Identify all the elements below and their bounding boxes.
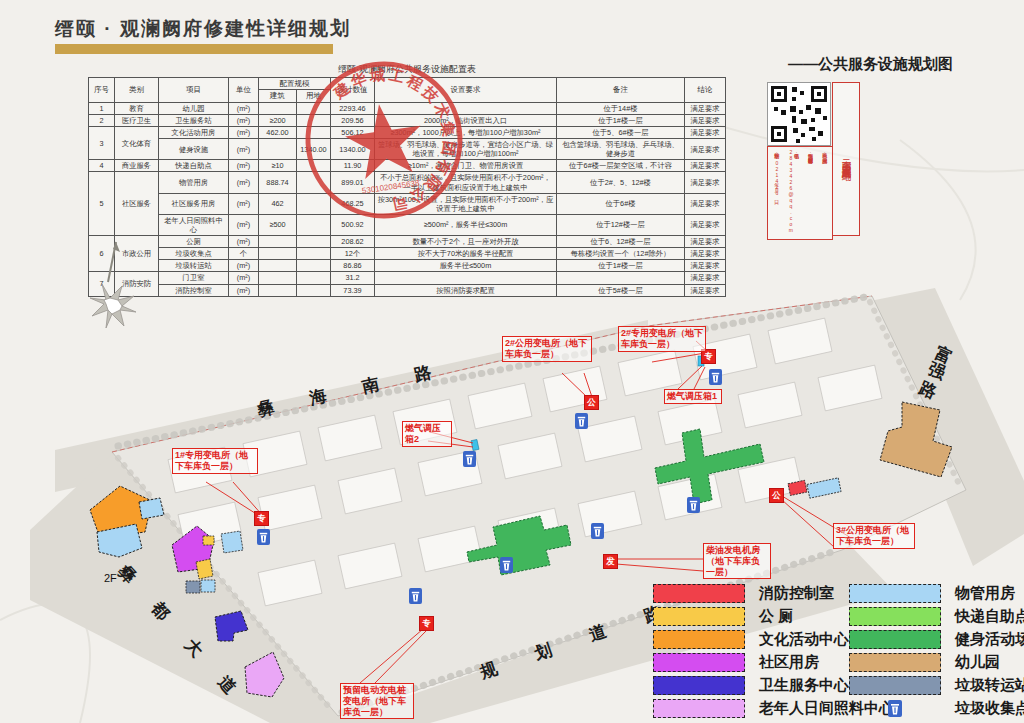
substation-marker: 公 — [769, 488, 784, 503]
table-cell: 位于6、12#楼一层 — [557, 236, 685, 248]
trash-collection-marker — [463, 451, 476, 467]
qr-info-column: 项目名称：观澜阙府 — [821, 149, 827, 237]
table-header-cell: 项目 — [159, 78, 229, 103]
trash-collection-marker — [575, 413, 588, 429]
legend-swatch — [653, 653, 745, 672]
table-cell: (m²) — [229, 126, 259, 138]
red-company-stamp: 建华城工程技术集团有限公司 5301020845638 — [298, 54, 470, 226]
table-cell — [557, 272, 685, 284]
table-cell: (m²) — [229, 214, 259, 235]
table-cell: (m²) — [229, 260, 259, 272]
qr-info-column: 编制单位：建华城工程技术有限公司 — [807, 149, 813, 237]
table-cell: 888.74 — [259, 172, 297, 193]
table-cell: 2 — [89, 114, 115, 126]
table-cell — [259, 248, 297, 260]
table-cell: 文化体育 — [115, 126, 159, 159]
table-cell — [259, 102, 297, 114]
table-cell: 31.2 — [331, 272, 375, 284]
table-cell: 个 — [229, 248, 259, 260]
table-row: 消防控制室(m²)73.39按照消防要求配置位于5#楼一层满足要求 — [89, 284, 726, 296]
toilet-footprint — [203, 536, 214, 545]
qr-info-column: 电子信箱：2843426@qq.com — [787, 149, 798, 237]
table-header-cell: 序号 — [89, 78, 115, 103]
table-cell: 按照消防要求配置 — [375, 284, 557, 296]
table-cell: 4 — [89, 160, 115, 172]
table-cell: 位于14#楼 — [557, 102, 685, 114]
table-cell: 按不大于70米的服务半径配置 — [375, 248, 557, 260]
table-cell: 3 — [89, 126, 115, 159]
table-cell: (m²) — [229, 139, 259, 160]
map-annotation: 2#专用变电所（地下车库负一层） — [618, 326, 706, 352]
table-cell: ≥200 — [259, 114, 297, 126]
page-title: 缙颐 · 观澜阙府修建性详细规划 — [55, 16, 351, 42]
qr-side-caption: 云南省国土空间规划成果二维码 — [832, 82, 860, 236]
table-cell: 满足要求 — [685, 214, 726, 235]
table-cell: 位于5、6#楼一层 — [557, 126, 685, 138]
table-cell: 文化活动用房 — [159, 126, 229, 138]
table-cell: 卫生服务站 — [159, 114, 229, 126]
legend-swatch — [653, 607, 745, 626]
table-cell: (m²) — [229, 193, 259, 214]
table-cell — [297, 236, 331, 248]
table-cell — [297, 260, 331, 272]
table-cell: 位于5#楼一层 — [557, 284, 685, 296]
table-cell: 位于12#楼一层 — [557, 214, 685, 235]
table-cell: 满足要求 — [685, 114, 726, 126]
table-cell: 数量不小于2个，且一座对外开放 — [375, 236, 557, 248]
trash-collection-marker — [257, 529, 270, 545]
table-cell: (m²) — [229, 160, 259, 172]
toilet-footprint-2 — [196, 559, 213, 579]
floor-count-label: 2F — [104, 572, 117, 584]
legend-swatch — [653, 699, 745, 718]
legend-swatch — [849, 676, 941, 695]
table-cell: 73.39 — [331, 284, 375, 296]
table-cell: 幼儿园 — [159, 102, 229, 114]
stamp-star — [341, 99, 426, 181]
qr-info-box: 项目名称：观澜阙府编制单位：建华城工程技术有限公司电子信箱：2843426@qq… — [767, 146, 833, 240]
table-cell: 位于1#楼一层 — [557, 114, 685, 126]
table-cell: (m²) — [229, 236, 259, 248]
legend-label: 物管用房 — [955, 584, 1024, 603]
table-cell: 满足要求 — [685, 248, 726, 260]
table-header-cell: 单位 — [229, 78, 259, 103]
table-cell: 快递自助点 — [159, 160, 229, 172]
legend-swatch — [849, 653, 941, 672]
legend-label: 幼儿园 — [955, 653, 1024, 672]
table-cell — [297, 284, 331, 296]
table-cell — [297, 248, 331, 260]
table-cell — [297, 272, 331, 284]
legend-label: 健身活动场地 — [955, 630, 1024, 649]
table-cell: 公厕 — [159, 236, 229, 248]
table-cell: 每栋楼均设置一个（12#除外） — [557, 248, 685, 260]
map-annotation: 燃气调压箱2 — [402, 421, 452, 447]
table-cell: 12个 — [331, 248, 375, 260]
planning-sheet: 缙颐 · 观澜阙府修建性详细规划 ——公共服务设施规划图 缙颐·观澜阙府公共服务… — [0, 0, 1024, 723]
table-cell: 消防控制室 — [159, 284, 229, 296]
table-cell: 位于6#楼一层架空区域，不计容 — [557, 160, 685, 172]
table-cell: (m²) — [229, 272, 259, 284]
table-cell: 满足要求 — [685, 284, 726, 296]
qr-side-caption-text: 云南省国土空间规划成果二维码 — [840, 152, 853, 166]
table-cell — [259, 272, 297, 284]
table-cell: 满足要求 — [685, 193, 726, 214]
table-cell: 位于1#楼一层 — [557, 260, 685, 272]
qr-code — [767, 82, 831, 146]
table-cell: 医疗卫生 — [115, 114, 159, 126]
legend-swatch — [653, 676, 745, 695]
table-cell: (m²) — [229, 284, 259, 296]
table-cell: 满足要求 — [685, 260, 726, 272]
legend-swatch — [849, 584, 941, 603]
table-cell — [375, 272, 557, 284]
property-room-footprint-3 — [221, 531, 243, 553]
table-cell: 健身设施 — [159, 139, 229, 160]
map-annotation: 柴油发电机房（地下车库负一层） — [703, 543, 771, 579]
trash-collection-marker — [409, 588, 422, 604]
table-cell: 服务半径≤500m — [375, 260, 557, 272]
table-cell: 门卫室 — [159, 272, 229, 284]
map-annotation: 2#公用变电所（地下车库负一层） — [502, 336, 592, 362]
trash-collection-marker — [500, 557, 513, 573]
table-cell: 垃圾收集点 — [159, 248, 229, 260]
waste-transfer-footprint — [186, 581, 200, 593]
table-cell: 1 — [89, 102, 115, 114]
legend-swatch — [849, 607, 941, 626]
trash-collection-marker — [709, 369, 722, 385]
table-row: 垃圾转运站(m²)86.86服务半径≤500m位于1#楼一层满足要求 — [89, 260, 726, 272]
table-cell: ≥500 — [259, 214, 297, 235]
qr-info-column: 制作日期：2021年4月26日 — [773, 149, 779, 237]
table-cell: 社区服务 — [115, 172, 159, 236]
table-cell — [259, 139, 297, 160]
substation-marker: 专 — [419, 616, 434, 631]
legend-label: 快递自助点 — [955, 607, 1024, 626]
table-cell: 满足要求 — [685, 139, 726, 160]
table-cell: 208.62 — [331, 236, 375, 248]
table-cell: 满足要求 — [685, 102, 726, 114]
legend-right-column: 物管用房快递自助点健身活动场地幼儿园垃圾转运站垃圾收集点 — [849, 584, 1024, 718]
table-cell: 垃圾转运站 — [159, 260, 229, 272]
table-header-cell: 类别 — [115, 78, 159, 103]
map-annotation: 3#公用变电所（地下车库负一层） — [833, 523, 915, 549]
table-cell: ≥10 — [259, 160, 297, 172]
map-annotation: 预留电动充电桩变电所（地下车库负一层） — [340, 683, 414, 719]
table-cell: 满足要求 — [685, 172, 726, 193]
compass-icon — [78, 236, 148, 336]
table-cell: 教育 — [115, 102, 159, 114]
table-cell: (m²) — [229, 114, 259, 126]
table-cell: (m²) — [229, 102, 259, 114]
table-cell: 老年人日间照料中心 — [159, 214, 229, 235]
table-cell: 满足要求 — [685, 126, 726, 138]
property-room-footprint-4 — [201, 580, 215, 592]
table-cell: 包含篮球场、羽毛球场、乒乓球场、健身步道 — [557, 139, 685, 160]
map-annotation: 燃气调压箱1 — [664, 389, 722, 404]
trash-bin-icon — [849, 700, 941, 717]
map-annotation: 1#专用变电所（地下车库负一层） — [172, 448, 258, 474]
substation-marker: 公 — [584, 395, 599, 410]
table-row: 6市政公用公厕(m²)208.62数量不小于2个，且一座对外开放位于6、12#楼… — [89, 236, 726, 248]
table-cell: 462 — [259, 193, 297, 214]
table-cell: 位于2#、5、12#楼 — [557, 172, 685, 193]
map-section-title: ——公共服务设施规划图 — [788, 55, 953, 74]
table-cell: 满足要求 — [685, 236, 726, 248]
substation-marker: 发 — [603, 554, 618, 569]
table-cell — [259, 284, 297, 296]
table-cell: 满足要求 — [685, 160, 726, 172]
table-header-cell: 备注 — [557, 78, 685, 103]
legend-swatch — [653, 584, 745, 603]
table-cell: 位于6#楼 — [557, 193, 685, 214]
table-cell: 满足要求 — [685, 272, 726, 284]
table-row: 7消防安防门卫室(m²)31.2满足要求 — [89, 272, 726, 284]
table-cell: 社区服务用房 — [159, 193, 229, 214]
title-underline-bar — [55, 44, 333, 54]
legend-swatch — [653, 630, 745, 649]
table-cell — [259, 260, 297, 272]
trash-collection-marker — [591, 523, 604, 539]
table-cell: 5 — [89, 172, 115, 236]
legend-swatch — [849, 630, 941, 649]
table-cell — [259, 236, 297, 248]
trash-collection-marker — [687, 497, 700, 513]
table-cell: 462.00 — [259, 126, 297, 138]
substation-marker: 专 — [254, 511, 269, 526]
table-header-cell: 结论 — [685, 78, 726, 103]
table-cell: 物管用房 — [159, 172, 229, 193]
table-cell: (m²) — [229, 172, 259, 193]
legend-label: 垃圾收集点 — [955, 699, 1024, 718]
table-cell: 商业服务 — [115, 160, 159, 172]
table-header-cell: 建筑 — [259, 90, 297, 102]
table-cell: 86.86 — [331, 260, 375, 272]
legend-label: 垃圾转运站 — [955, 676, 1024, 695]
table-row: 垃圾收集点个12个按不大于70米的服务半径配置每栋楼均设置一个（12#除外）满足… — [89, 248, 726, 260]
